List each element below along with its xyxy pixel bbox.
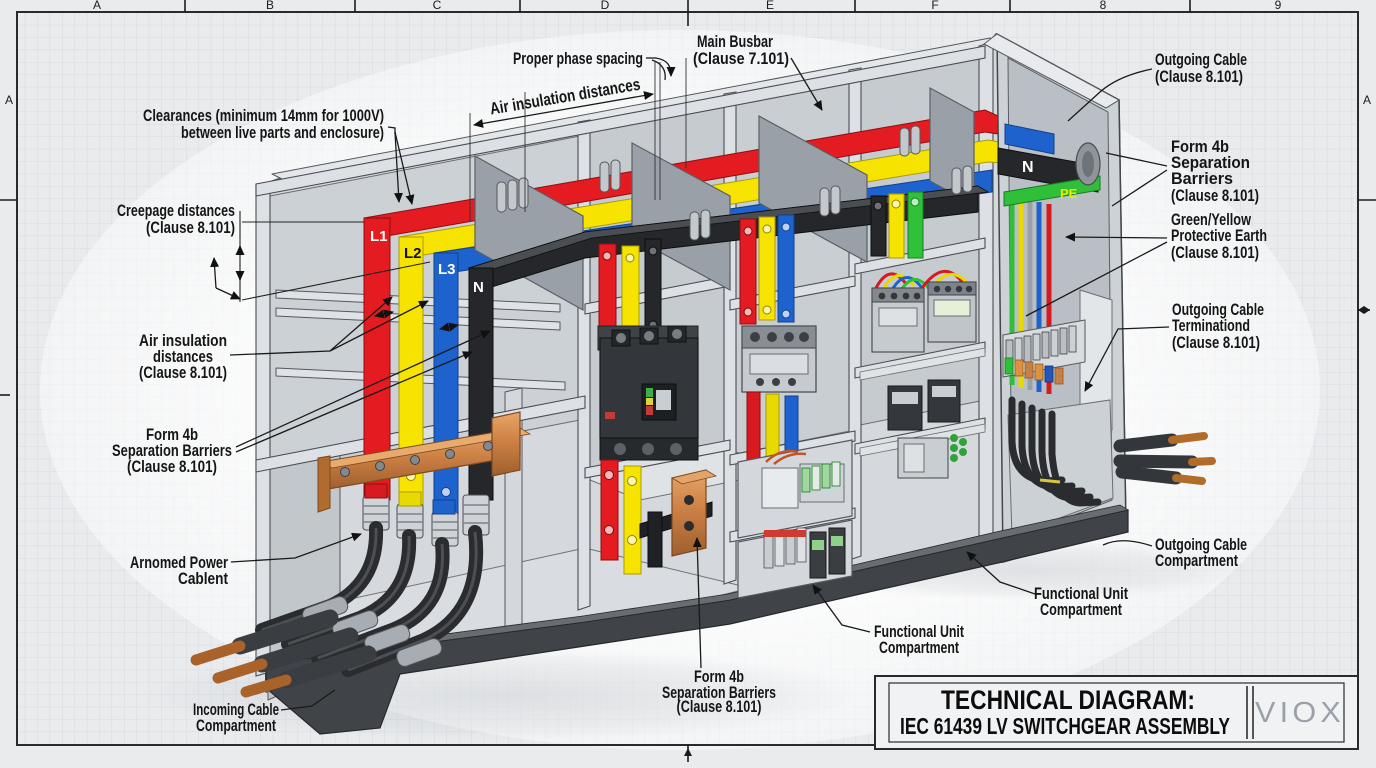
svg-text:(Clause 8.101): (Clause 8.101) <box>1172 333 1260 352</box>
svg-text:Compartment: Compartment <box>879 638 959 657</box>
svg-text:(Clause 8.101): (Clause 8.101) <box>1155 67 1243 86</box>
svg-text:Compartment: Compartment <box>1155 551 1238 570</box>
svg-text:Proper phase spacing: Proper phase spacing <box>513 49 643 68</box>
svg-text:L3: L3 <box>438 261 456 278</box>
svg-text:L1: L1 <box>370 228 388 245</box>
svg-text:(Clause 8.101): (Clause 8.101) <box>146 218 235 237</box>
svg-text:L2: L2 <box>404 245 422 262</box>
svg-text:C: C <box>433 0 442 12</box>
svg-text:VIOX: VIOX <box>1255 697 1345 729</box>
svg-text:Cablent: Cablent <box>178 569 228 588</box>
svg-text:A: A <box>1363 93 1371 107</box>
svg-text:(Clause 8.101): (Clause 8.101) <box>127 457 217 476</box>
svg-text:(Clause 8.101): (Clause 8.101) <box>1171 186 1259 205</box>
svg-text:IEC 61439 LV SWITCHGEAR ASSEMB: IEC 61439 LV SWITCHGEAR ASSEMBLY <box>900 713 1230 739</box>
svg-text:TECHNICAL DIAGRAM:: TECHNICAL DIAGRAM: <box>941 685 1195 715</box>
svg-text:E: E <box>766 0 774 12</box>
svg-text:N: N <box>1022 159 1034 176</box>
svg-text:B: B <box>266 0 274 12</box>
svg-text:PE: PE <box>1060 186 1078 201</box>
svg-text:(Clause 8.101): (Clause 8.101) <box>139 363 227 382</box>
svg-text:A: A <box>5 93 13 107</box>
svg-text:(Clause 8.101): (Clause 8.101) <box>677 697 762 716</box>
svg-text:Compartment: Compartment <box>196 716 276 735</box>
svg-text:9: 9 <box>1275 0 1282 12</box>
svg-text:N: N <box>473 279 484 296</box>
svg-text:A: A <box>93 0 101 12</box>
svg-text:F: F <box>931 0 938 12</box>
svg-text:D: D <box>601 0 610 12</box>
svg-text:Compartment: Compartment <box>1040 600 1122 619</box>
svg-text:8: 8 <box>1100 0 1107 12</box>
svg-text:(Clause 8.101): (Clause 8.101) <box>1171 243 1259 262</box>
svg-text:(Clause 7.101): (Clause 7.101) <box>693 49 789 68</box>
svg-text:between live parts and enclosu: between live parts and enclosure) <box>181 123 384 142</box>
